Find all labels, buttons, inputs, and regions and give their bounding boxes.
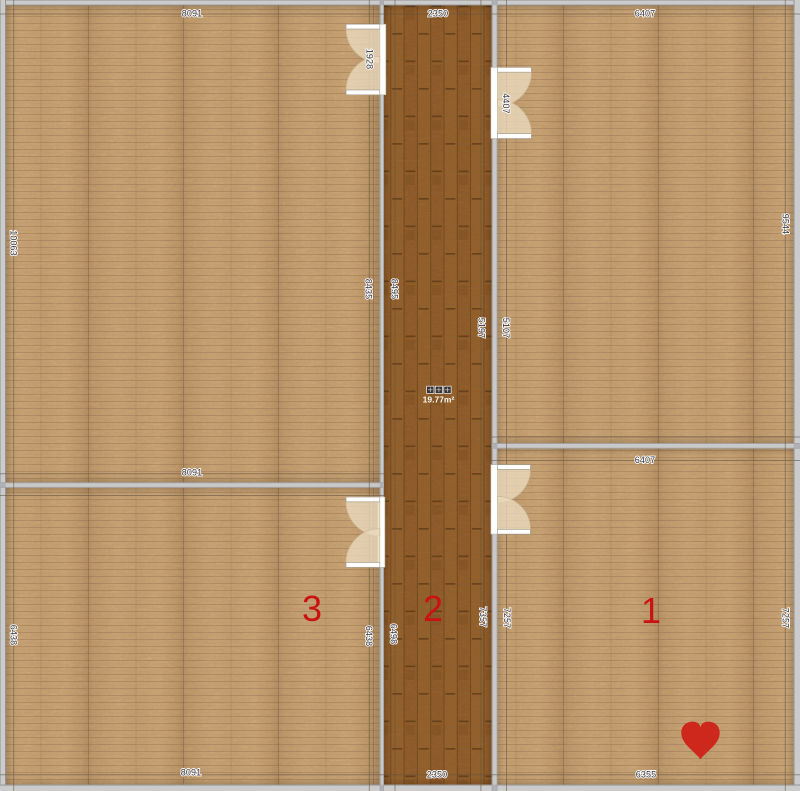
svg-text:2: 2 [423,588,443,629]
svg-text:6355: 6355 [636,770,656,780]
svg-text:2350: 2350 [427,770,447,780]
svg-text:8091: 8091 [182,9,202,19]
svg-text:6407: 6407 [635,9,655,19]
svg-text:1: 1 [641,590,661,631]
svg-text:7257: 7257 [502,608,512,628]
svg-text:2350: 2350 [428,9,448,19]
svg-text:6498: 6498 [389,624,399,644]
svg-text:6438: 6438 [364,626,374,646]
svg-text:19.77m²: 19.77m² [423,395,455,405]
svg-text:8091: 8091 [181,768,201,778]
svg-text:5197: 5197 [477,318,487,338]
svg-text:4407: 4407 [501,93,511,113]
svg-text:8091: 8091 [182,468,202,478]
svg-text:9544: 9544 [781,214,791,234]
svg-text:7357: 7357 [478,607,488,627]
svg-text:1928: 1928 [364,49,374,69]
svg-text:6407: 6407 [635,455,655,465]
svg-text:8495: 8495 [390,279,400,299]
svg-text:5107: 5107 [501,318,511,338]
svg-text:7257: 7257 [781,608,791,628]
svg-text:8435: 8435 [364,279,374,299]
svg-text:10063: 10063 [8,230,18,256]
svg-text:6438: 6438 [8,625,18,645]
svg-text:3: 3 [302,588,322,629]
